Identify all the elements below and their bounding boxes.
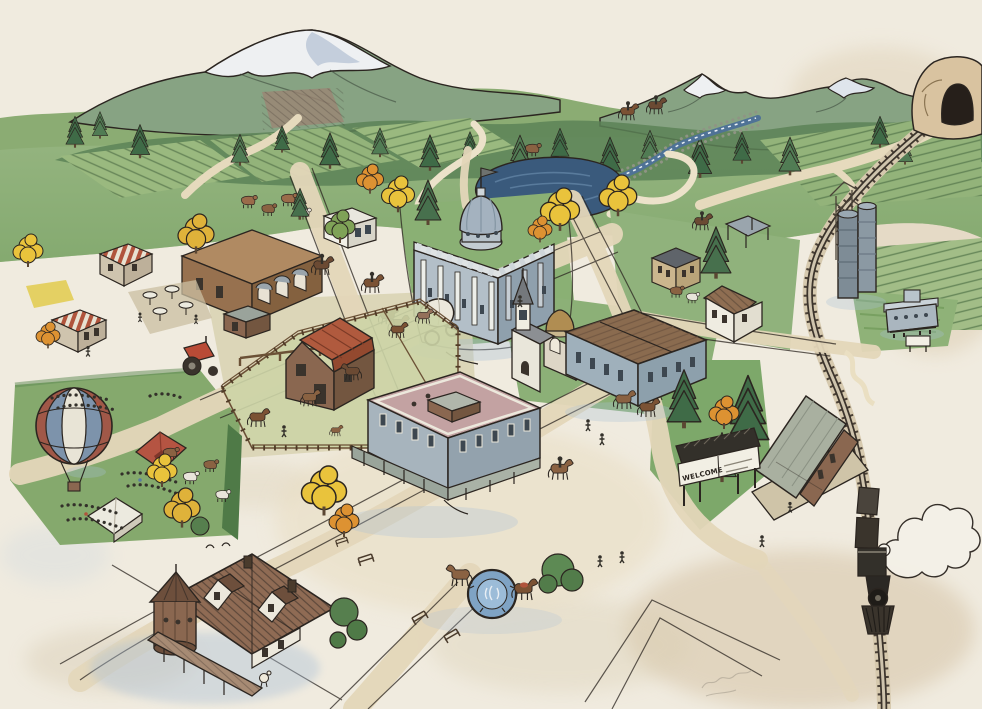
- number-plate: [875, 595, 881, 601]
- building-shadow: [565, 402, 675, 422]
- bush: [191, 517, 209, 535]
- chimney: [244, 556, 252, 568]
- saddle: [520, 582, 528, 587]
- balloon-basket: [68, 482, 80, 491]
- watercolor-town-map: WELCOME: [0, 0, 982, 709]
- clearcut-hatch: [261, 88, 345, 130]
- fountain: [468, 570, 516, 618]
- loft-door: [296, 364, 306, 376]
- chimney: [288, 580, 296, 592]
- balloon-gore-center: [62, 388, 86, 464]
- cupola: [904, 290, 920, 302]
- building-shadow: [342, 506, 518, 538]
- rail-car: [857, 487, 879, 515]
- path-courthouse-north: [464, 150, 468, 206]
- rail-car: [855, 517, 879, 548]
- lantern: [477, 188, 485, 196]
- silo: [858, 206, 876, 292]
- silo: [838, 214, 858, 298]
- caboose-plaque: [906, 336, 930, 346]
